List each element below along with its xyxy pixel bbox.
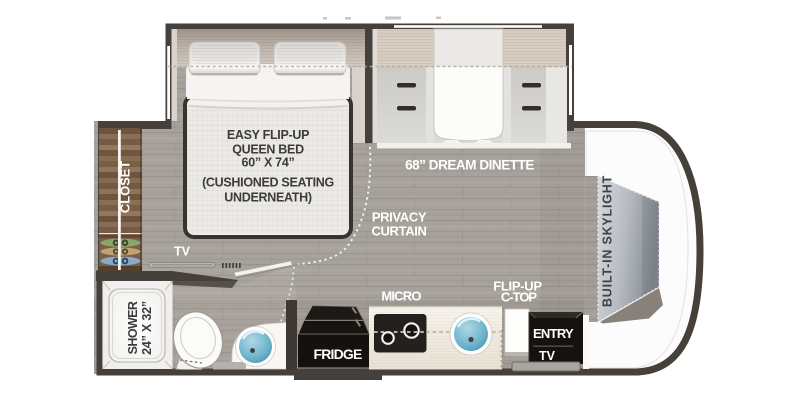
svg-text:TV: TV — [539, 349, 556, 363]
svg-text:60” X 74”: 60” X 74” — [242, 156, 295, 170]
svg-text:68” DREAM DINETTE: 68” DREAM DINETTE — [405, 158, 534, 173]
svg-text:FRIDGE: FRIDGE — [313, 346, 362, 362]
svg-text:(CUSHIONED SEATING: (CUSHIONED SEATING — [202, 176, 334, 190]
svg-text:CLOSET: CLOSET — [118, 161, 133, 213]
svg-text:PRIVACY: PRIVACY — [372, 210, 427, 225]
svg-text:TV: TV — [174, 245, 191, 259]
svg-text:UNDERNEATH): UNDERNEATH) — [224, 191, 312, 205]
svg-text:ENTRY: ENTRY — [533, 326, 574, 341]
svg-text:BUILT-IN SKYLIGHT: BUILT-IN SKYLIGHT — [601, 175, 615, 307]
svg-text:EASY FLIP-UP: EASY FLIP-UP — [227, 128, 309, 142]
svg-text:C-TOP: C-TOP — [501, 290, 538, 305]
svg-text:MICRO: MICRO — [381, 289, 421, 304]
svg-text:QUEEN BED: QUEEN BED — [232, 143, 304, 157]
svg-text:24” X 32”: 24” X 32” — [140, 301, 154, 355]
svg-text:SHOWER: SHOWER — [126, 301, 140, 354]
svg-text:CURTAIN: CURTAIN — [371, 224, 426, 239]
